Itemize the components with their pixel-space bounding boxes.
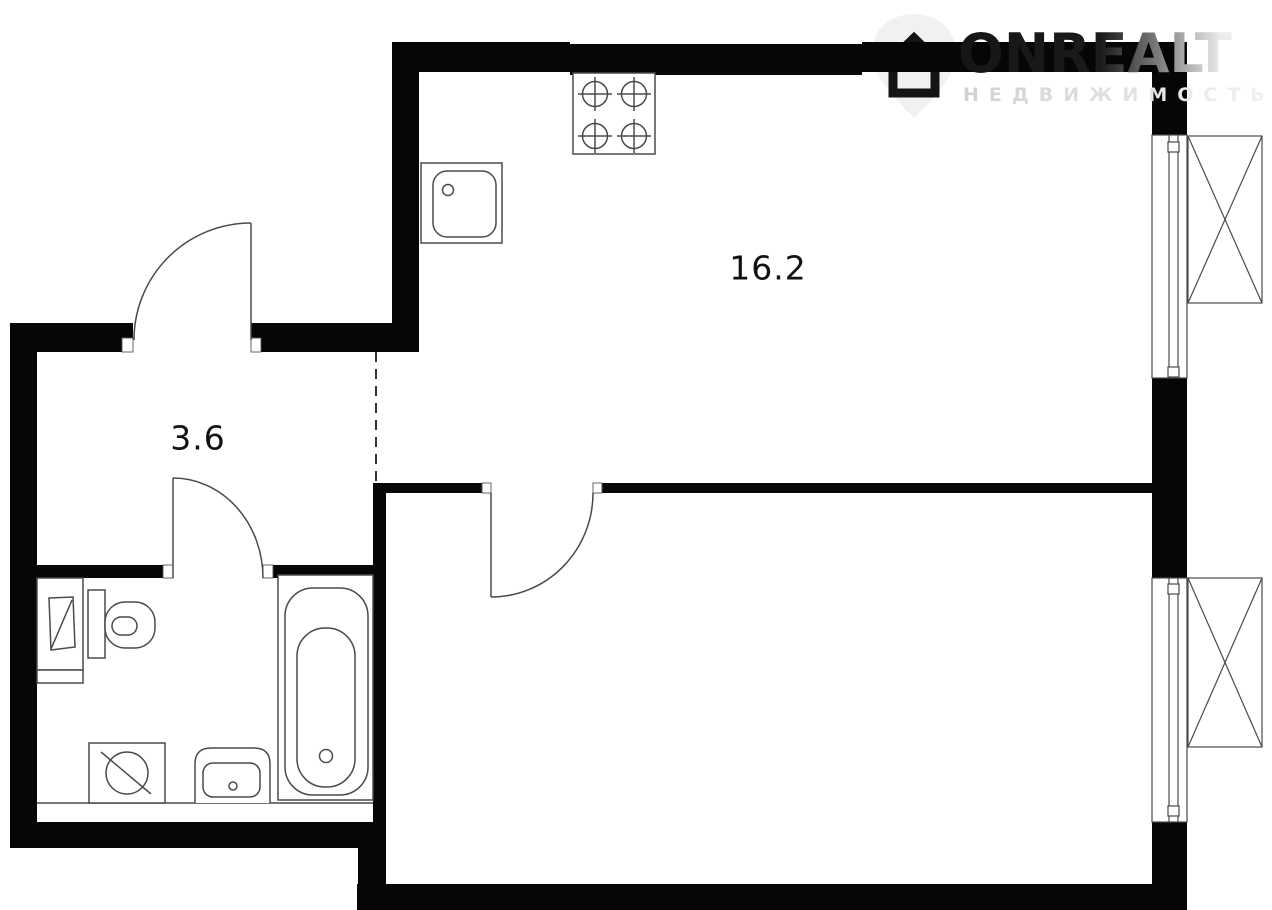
wall-bath-bottom — [10, 822, 358, 848]
door-jambs — [122, 338, 602, 578]
kitchen-fixtures — [421, 73, 655, 243]
wash-basin-icon — [195, 748, 270, 803]
wall-top-b — [570, 44, 862, 75]
stove-icon — [573, 73, 655, 154]
floorplan-page: 16.2 3.6 ONREALT НЕДВИЖИМОСТЬ — [0, 0, 1272, 910]
bathroom-cabinet-icon — [37, 578, 83, 683]
room-area-label-kitchen-living: 16.2 — [729, 249, 806, 288]
bathtub-icon — [278, 575, 373, 800]
door-swing-arc — [491, 493, 593, 597]
wall-right-bottom — [1152, 822, 1187, 910]
wall-top-c — [862, 42, 1187, 72]
jamb — [482, 483, 491, 493]
wall-left — [10, 323, 37, 848]
wall-hall-top-right — [251, 323, 419, 352]
jamb — [163, 565, 173, 578]
bedroom-door-icon — [491, 493, 593, 597]
wall-right-top — [1152, 42, 1187, 135]
wall-bath-top-left — [37, 565, 163, 578]
window-balcony-box — [1188, 136, 1262, 303]
jamb — [263, 565, 273, 578]
bathroom-door-icon — [173, 478, 263, 578]
bathroom-fixtures — [37, 575, 373, 803]
window-balcony-box — [1188, 578, 1262, 747]
window-icon — [1152, 578, 1187, 822]
wall-bedroom-left — [373, 483, 386, 886]
entrance-door-icon — [134, 223, 251, 340]
door-swing-arc — [134, 223, 251, 340]
toilet-icon — [88, 590, 155, 658]
door-swing-arc — [173, 478, 263, 578]
jamb — [251, 338, 261, 352]
doors — [134, 223, 593, 597]
walls — [10, 42, 1187, 910]
wall-bedroom-top-right — [601, 483, 1152, 493]
jamb — [593, 483, 602, 493]
wall-bedroom-bottom — [357, 884, 1187, 910]
wall-right-mid — [1152, 378, 1187, 578]
room-area-label-hallway: 3.6 — [170, 419, 225, 458]
jamb — [122, 338, 133, 352]
window-icon — [1152, 135, 1187, 378]
wall-kitchen-left — [392, 42, 419, 352]
washing-machine-icon — [89, 743, 165, 803]
wall-bedroom-top-left — [373, 483, 482, 493]
kitchen-sink-icon — [421, 163, 502, 243]
